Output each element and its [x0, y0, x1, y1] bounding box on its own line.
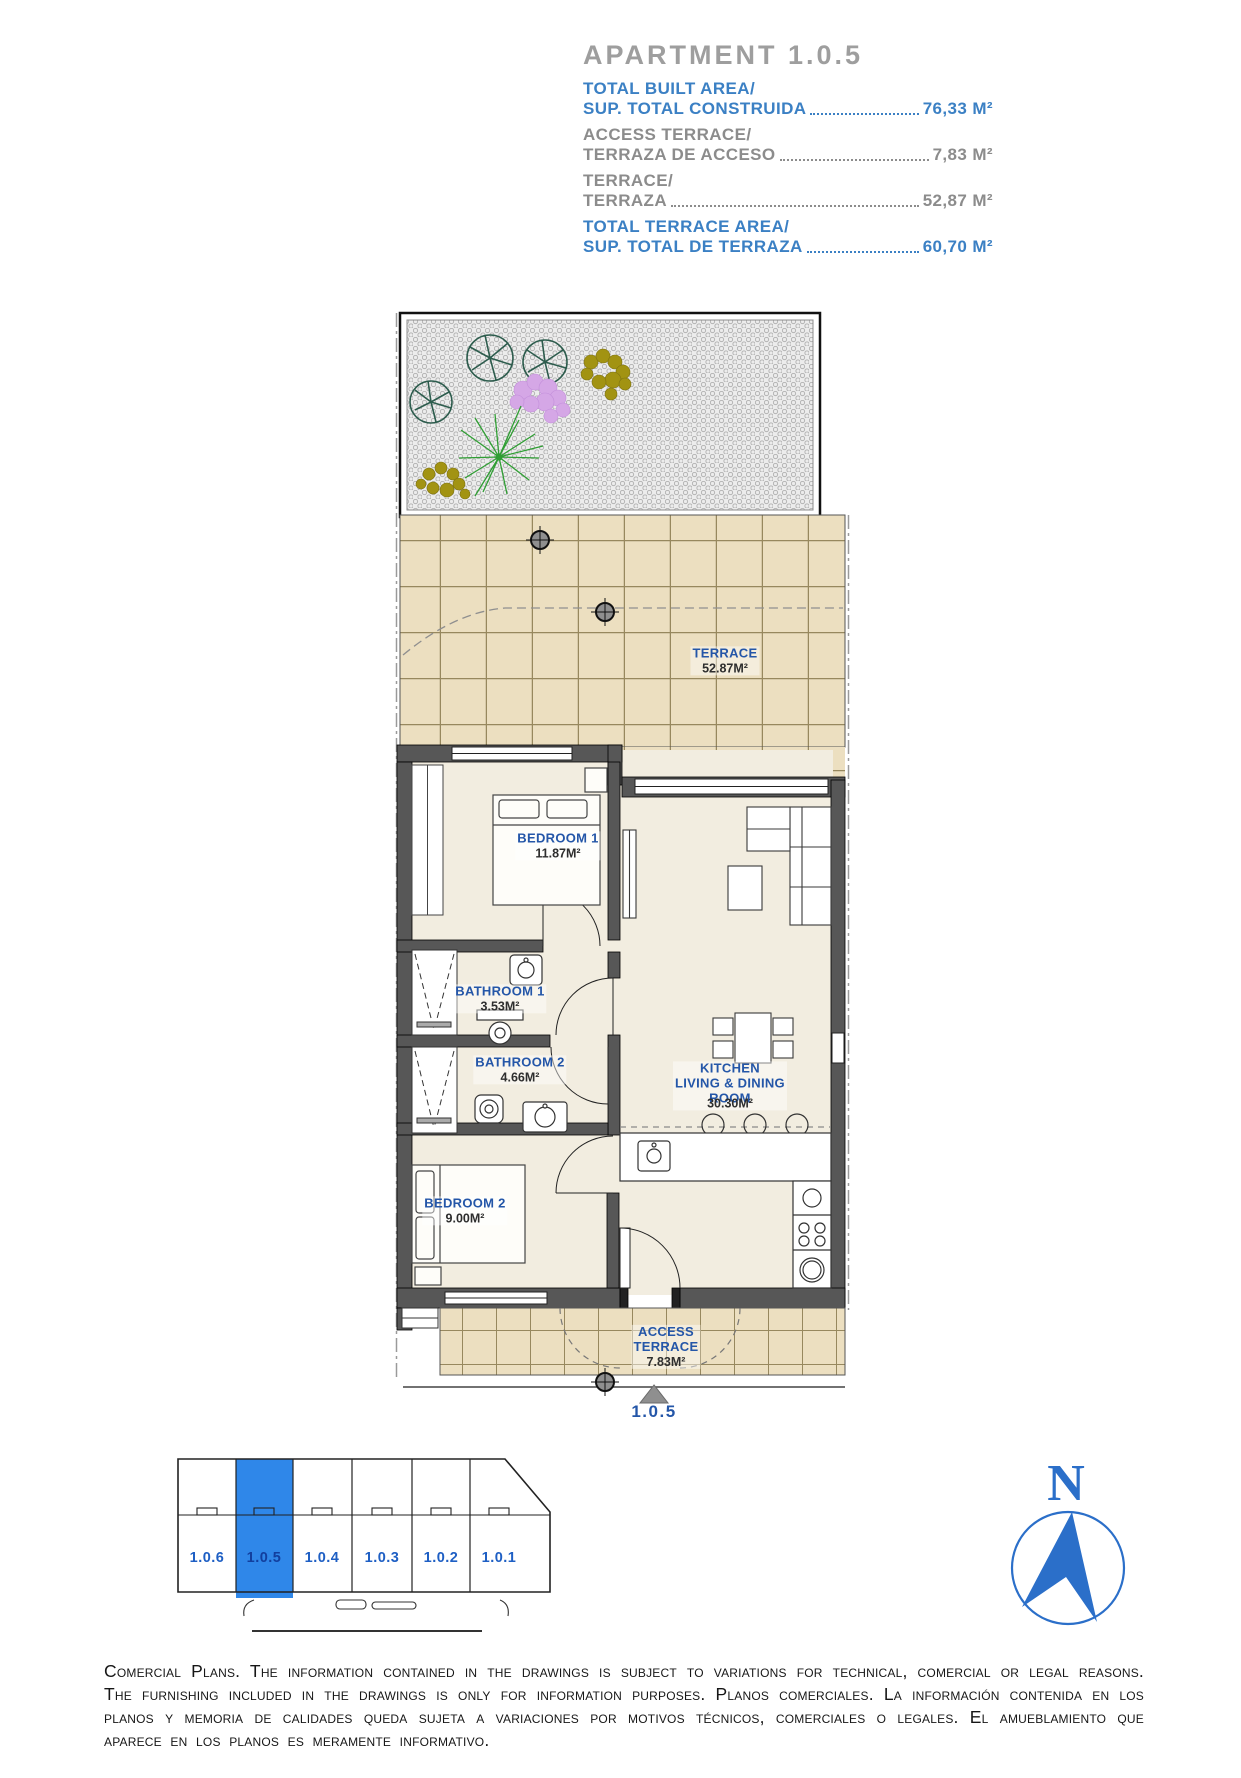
- locator-unit-106: 1.0.6: [190, 1550, 225, 1566]
- summary-value: 7,83 M²: [933, 145, 993, 165]
- locator-unit-103: 1.0.3: [365, 1550, 400, 1566]
- summary-label-es: TERRAZA: [583, 191, 667, 211]
- summary-value: 76,33 M²: [923, 99, 993, 119]
- locator-unit-105: 1.0.5: [247, 1550, 282, 1566]
- access-terrace-area: [402, 1308, 845, 1387]
- compass-needle: [1022, 1512, 1097, 1622]
- room-label-bedroom2: BEDROOM 2 9.00M²: [422, 1196, 507, 1225]
- floor-plan-drawing: [395, 310, 851, 1425]
- facade-line: [178, 1508, 550, 1515]
- washbasin-icon: [523, 1102, 567, 1132]
- summary-row-terrace: TERRACE/ TERRAZA 52,87 M²: [583, 171, 993, 210]
- toilet-icon: [475, 1095, 503, 1123]
- summary-row-total-terrace: TOTAL TERRACE AREA/ SUP. TOTAL DE TERRAZ…: [583, 217, 993, 256]
- summary-label-es: SUP. TOTAL DE TERRAZA: [583, 237, 803, 257]
- summary-label-en: TERRACE/: [583, 171, 993, 191]
- summary-label-en: TOTAL TERRACE AREA/: [583, 217, 993, 237]
- locator-unit-102: 1.0.2: [424, 1550, 459, 1566]
- room-label-kitchen: KITCHEN LIVING & DINING ROOM 30.30M²: [673, 1061, 787, 1110]
- dotted-leader: [671, 205, 919, 207]
- kitchen-island-icon: [620, 1133, 831, 1181]
- coffee-table-icon: [728, 866, 762, 910]
- page-title: APARTMENT 1.0.5: [583, 40, 993, 71]
- terrace-area: [400, 515, 845, 780]
- building-locator: 1.0.6 1.0.5 1.0.4 1.0.3 1.0.2 1.0.1: [168, 1452, 558, 1637]
- locator-unit-104: 1.0.4: [305, 1550, 340, 1566]
- summary-row-access-terrace: ACCESS TERRACE/ TERRAZA DE ACCESO 7,83 M…: [583, 125, 993, 164]
- summary-value: 52,87 M²: [923, 191, 993, 211]
- building-outline: [178, 1459, 550, 1592]
- wardrobe-icon: [412, 765, 443, 915]
- room-label-bedroom1: BEDROOM 1 11.87M²: [515, 831, 600, 860]
- summary-label-es: TERRAZA DE ACCESO: [583, 145, 776, 165]
- locator-unit-101: 1.0.1: [482, 1550, 517, 1566]
- room-label-terrace: TERRACE 52.87M²: [691, 646, 760, 675]
- room-label-bathroom2: BATHROOM 2 4.66M²: [473, 1055, 566, 1084]
- north-compass-icon: N: [1000, 1445, 1145, 1655]
- room-label-access-terrace: ACCESS TERRACE 7.83M²: [632, 1325, 701, 1369]
- brochure-page: APARTMENT 1.0.5 TOTAL BUILT AREA/ SUP. T…: [0, 0, 1241, 1778]
- summary-row-total-built: TOTAL BUILT AREA/ SUP. TOTAL CONSTRUIDA …: [583, 79, 993, 118]
- summary-value: 60,70 M²: [923, 237, 993, 257]
- washbasin-icon: [510, 955, 542, 985]
- summary-label-es: SUP. TOTAL CONSTRUIDA: [583, 99, 806, 119]
- highlighted-unit: [236, 1459, 293, 1598]
- locator-porches: [244, 1600, 509, 1631]
- north-letter: N: [1047, 1455, 1085, 1512]
- kitchen-counter-icon: [793, 1181, 831, 1288]
- unit-number-label: 1.0.5: [631, 1402, 676, 1422]
- tv-unit-icon: [623, 830, 636, 918]
- floor-plan: TERRACE 52.87M² BEDROOM 1 11.87M² BATHRO…: [395, 310, 851, 1425]
- summary-label-en: ACCESS TERRACE/: [583, 125, 993, 145]
- summary-label-en: TOTAL BUILT AREA/: [583, 79, 993, 99]
- dotted-leader: [810, 113, 918, 115]
- legal-disclaimer: Comercial Plans. The information contain…: [104, 1660, 1144, 1752]
- room-label-bathroom1: BATHROOM 1 3.53M²: [453, 984, 546, 1013]
- dotted-leader: [807, 251, 919, 253]
- dotted-leader: [780, 159, 929, 161]
- area-summary: APARTMENT 1.0.5 TOTAL BUILT AREA/ SUP. T…: [583, 40, 993, 263]
